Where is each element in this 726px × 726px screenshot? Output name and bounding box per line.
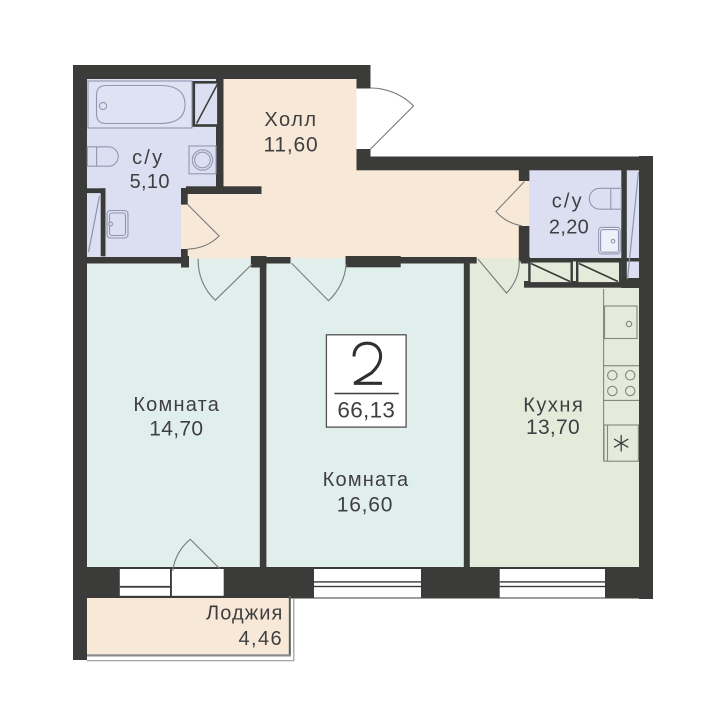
svg-text:с/у: с/у (132, 147, 164, 169)
svg-text:Комната: Комната (133, 394, 220, 416)
svg-text:14,70: 14,70 (149, 418, 203, 441)
svg-text:Комната: Комната (323, 469, 410, 491)
svg-text:4,46: 4,46 (238, 628, 283, 650)
svg-text:5,10: 5,10 (130, 171, 170, 193)
svg-text:Холл: Холл (264, 109, 317, 131)
svg-text:16,60: 16,60 (337, 494, 394, 517)
svg-text:с/у: с/у (552, 191, 584, 213)
svg-text:13,70: 13,70 (526, 416, 580, 439)
svg-text:66,13: 66,13 (337, 398, 395, 423)
svg-text:2,20: 2,20 (549, 217, 589, 239)
svg-text:11,60: 11,60 (264, 134, 319, 157)
svg-text:Кухня: Кухня (523, 395, 584, 417)
svg-text:Лоджия: Лоджия (206, 602, 283, 624)
